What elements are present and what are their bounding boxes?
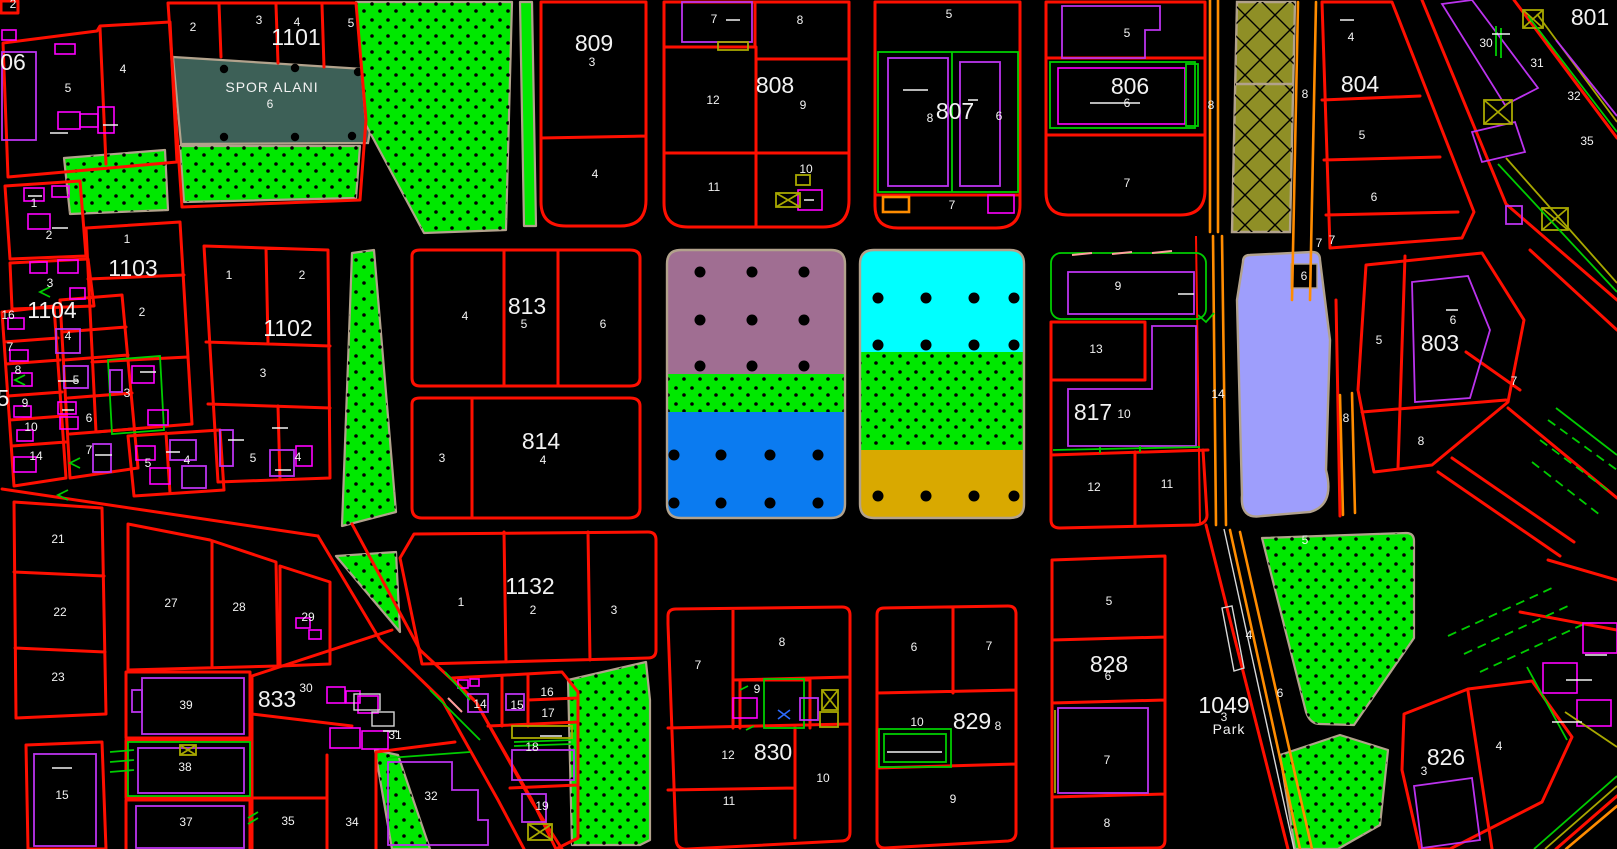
zone-block-mauve-blue[interactable] bbox=[667, 250, 845, 518]
parcel-number-label: 17 bbox=[541, 706, 555, 720]
parcel-number-label: 30 bbox=[1479, 36, 1493, 50]
parcel-number-label: 7 bbox=[1124, 176, 1131, 190]
parcel-number-label: 6 bbox=[996, 109, 1003, 123]
zone-olive-hatch[interactable] bbox=[1232, 2, 1295, 232]
parcel-number-label: 4 bbox=[294, 15, 301, 29]
parcel-number-label: 3 bbox=[611, 603, 618, 617]
parcel-number-label: 12 bbox=[706, 93, 720, 107]
block-number-label: 807 bbox=[936, 98, 974, 124]
block-number-label: 06 bbox=[0, 49, 26, 75]
parcel-number-label: 8 bbox=[995, 719, 1002, 733]
parcel-number-label: 6 bbox=[911, 640, 918, 654]
parcel-number-label: 11 bbox=[1161, 477, 1174, 491]
parcel-number-label: 8 bbox=[1418, 434, 1425, 448]
block-number-label: 1104 bbox=[27, 297, 77, 323]
parcel-number-label: 21 bbox=[51, 532, 65, 546]
parcel-number-label: 9 bbox=[22, 396, 29, 410]
block-number-label: 809 bbox=[575, 30, 613, 56]
parcel-number-label: 4 bbox=[120, 62, 127, 76]
parcel-number-label: 23 bbox=[51, 670, 65, 684]
parcel-number-label: 5 bbox=[65, 81, 72, 95]
block-number-label: 817 bbox=[1074, 399, 1112, 425]
parcel-number-label: 32 bbox=[424, 789, 438, 803]
parcel-number-label: 4 bbox=[1348, 30, 1355, 44]
parcel-number-label: 14 bbox=[29, 449, 43, 463]
parcel-number-label: 8 bbox=[1302, 87, 1309, 101]
parcel-number-label: 14 bbox=[1211, 387, 1225, 401]
parcel-number-label: 6 bbox=[86, 411, 93, 425]
parcel-number-label: 7 bbox=[7, 340, 14, 354]
block-number-label: 829 bbox=[953, 708, 991, 734]
parcel-number-label: 38 bbox=[178, 760, 192, 774]
parcel-number-label: 7 bbox=[1511, 374, 1518, 388]
block-number-label: 803 bbox=[1421, 330, 1459, 356]
parcel-number-label: 6 bbox=[1301, 269, 1308, 283]
parcel-number-label: 8 bbox=[1208, 98, 1215, 112]
parcel-number-label: 19 bbox=[535, 799, 549, 813]
block-number-label: 808 bbox=[756, 72, 794, 98]
parcel-number-label: 10 bbox=[799, 162, 813, 176]
parcel-number-label: 15 bbox=[55, 788, 69, 802]
parcel-number-label: 22 bbox=[53, 605, 67, 619]
parcel-number-label: 15 bbox=[510, 698, 524, 712]
parcel-number-label: 3 bbox=[124, 386, 131, 400]
parcel-number-label: 1 bbox=[458, 595, 465, 609]
parcel-number-label: 5 bbox=[145, 456, 152, 470]
parcel-number-label: 5 bbox=[250, 451, 257, 465]
parcel-number-label: 6 bbox=[1371, 190, 1378, 204]
parcel-number-label: 31 bbox=[1530, 56, 1544, 70]
parcel-number-label: 9 bbox=[950, 792, 957, 806]
cad-map-canvas[interactable]: 0611018098088078068048015110411031102813… bbox=[0, 0, 1617, 849]
block-number-label: 833 bbox=[258, 686, 296, 712]
parcel-number-label: 5 bbox=[1106, 594, 1113, 608]
parcel-number-label: 7 bbox=[1316, 236, 1323, 250]
parcel-number-label: 6 bbox=[1450, 313, 1457, 327]
parcel-number-label: 9 bbox=[800, 98, 807, 112]
parcel-number-label: 8 bbox=[15, 363, 22, 377]
parcel-number-label: 4 bbox=[540, 453, 547, 467]
parcel-number-label: 32 bbox=[1567, 89, 1581, 103]
parcel-number-label: 35 bbox=[1580, 134, 1594, 148]
parcel-number-label: 4 bbox=[462, 309, 469, 323]
parcel-number-label: 1 bbox=[31, 196, 38, 210]
parcel-number-label: 6 bbox=[1277, 686, 1284, 700]
parcel-number-label: 18 bbox=[525, 740, 539, 754]
parcel-number-label: 4 bbox=[1246, 628, 1253, 642]
parcel-number-label: 5 bbox=[521, 317, 528, 331]
parcel-number-label: 6 bbox=[1105, 669, 1112, 683]
parcel-number-label: 7 bbox=[1104, 753, 1111, 767]
parcel-number-label: 10 bbox=[1117, 407, 1131, 421]
zone-name-label: SPOR ALANI bbox=[225, 79, 318, 95]
parcel-number-label: 2 bbox=[46, 228, 53, 242]
parcel-number-label: 5 bbox=[946, 7, 953, 21]
parcel-number-label: 30 bbox=[299, 681, 313, 695]
parcel-number-label: 4 bbox=[65, 329, 72, 343]
parcel-number-label: 5 bbox=[1359, 128, 1366, 142]
parcel-number-label: 4 bbox=[1496, 739, 1503, 753]
block-number-label: 801 bbox=[1571, 4, 1609, 30]
parcel-number-label: 8 bbox=[1343, 411, 1350, 425]
parcel-number-label: 27 bbox=[164, 596, 178, 610]
parcel-number-label: 6 bbox=[267, 97, 274, 111]
block-number-label: 814 bbox=[522, 428, 561, 454]
parcel-number-label: 6 bbox=[1124, 96, 1131, 110]
parcel-number-label: 7 bbox=[695, 658, 702, 672]
block-number-label: 830 bbox=[754, 739, 792, 765]
parcel-number-label: 3 bbox=[589, 55, 596, 69]
zone-park[interactable] bbox=[520, 2, 536, 226]
parcel-number-label: 4 bbox=[592, 167, 599, 181]
block-number-label: 826 bbox=[1427, 744, 1465, 770]
parcel-number-label: 1 bbox=[226, 268, 233, 282]
parcel-number-label: 2 bbox=[530, 603, 537, 617]
parcel-number-label: 5 bbox=[1376, 333, 1383, 347]
parcel-number-label: 8 bbox=[1104, 816, 1111, 830]
block-number-label: 5 bbox=[0, 385, 9, 411]
parcel-number-label: 3 bbox=[256, 13, 263, 27]
block-number-label: 804 bbox=[1341, 71, 1380, 97]
parcel-number-label: 14 bbox=[473, 697, 487, 711]
parcel-number-label: 4 bbox=[295, 450, 302, 464]
parcel-number-label: 39 bbox=[179, 698, 193, 712]
parcel-number-label: 11 bbox=[723, 794, 736, 808]
parcel-number-label: 13 bbox=[1089, 342, 1103, 356]
parcel-number-label: 8 bbox=[779, 635, 786, 649]
parcel-number-label: 3 bbox=[439, 451, 446, 465]
block-number-label: 813 bbox=[508, 293, 546, 319]
parcel-number-label: 12 bbox=[1087, 480, 1101, 494]
parcel-number-label: 1 bbox=[124, 232, 131, 246]
parcel-number-label: 5 bbox=[1124, 26, 1131, 40]
parcel-number-label: 5 bbox=[73, 373, 80, 387]
parcel-number-label: 3 bbox=[1421, 764, 1428, 778]
parcel-number-label: 10 bbox=[816, 771, 830, 785]
parcel-number-label: 9 bbox=[754, 682, 761, 696]
parcel-number-label: 35 bbox=[281, 814, 295, 828]
parcel-number-label: 6 bbox=[600, 317, 607, 331]
parcel-number-label: 16 bbox=[1, 308, 15, 322]
parcel-number-label: 5 bbox=[1302, 533, 1309, 547]
parcel-number-label: 7 bbox=[1329, 233, 1336, 247]
parcel-number-label: 5 bbox=[348, 16, 355, 30]
parcel-number-label: 9 bbox=[1115, 279, 1122, 293]
parcel-number-label: 2 bbox=[10, 0, 17, 11]
zone-name-label: Park bbox=[1213, 721, 1246, 737]
parcel-number-label: 3 bbox=[47, 276, 54, 290]
parcel-number-label: 3 bbox=[260, 366, 267, 380]
parcel-number-label: 16 bbox=[540, 685, 554, 699]
parcel-number-label: 7 bbox=[711, 12, 718, 26]
parcel-number-label: 7 bbox=[986, 639, 993, 653]
parcel-number-label: 7 bbox=[949, 198, 956, 212]
parcel-number-label: 29 bbox=[301, 610, 315, 624]
parcel-number-label: 3 bbox=[1221, 710, 1228, 724]
block-number-label: 1132 bbox=[505, 573, 554, 599]
parcel-number-label: 34 bbox=[345, 815, 359, 829]
parcel-number-label: 2 bbox=[139, 305, 146, 319]
zone-sports-area[interactable] bbox=[173, 57, 380, 144]
parcel-number-label: 10 bbox=[910, 715, 924, 729]
parcel-number-label: 10 bbox=[24, 420, 38, 434]
zone-lavender-parcel[interactable] bbox=[1237, 252, 1330, 517]
parcel-number-label: 8 bbox=[927, 111, 934, 125]
parcel-number-label: 8 bbox=[797, 13, 804, 27]
block-number-label: 1102 bbox=[263, 315, 312, 341]
parcel-number-label: 2 bbox=[190, 20, 197, 34]
block-number-label: 1103 bbox=[108, 255, 157, 281]
parcel-number-label: 4 bbox=[184, 453, 191, 467]
map-viewport[interactable]: 0611018098088078068048015110411031102813… bbox=[0, 0, 1617, 849]
parcel-number-label: 37 bbox=[179, 815, 193, 829]
parcel-number-label: 11 bbox=[708, 180, 721, 194]
zone-block-cyan-gold[interactable] bbox=[860, 250, 1024, 518]
parcel-number-label: 7 bbox=[86, 443, 93, 457]
parcel-number-label: 2 bbox=[299, 268, 306, 282]
parcel-number-label: 28 bbox=[232, 600, 246, 614]
parcel-number-label: 31 bbox=[388, 728, 402, 742]
parcel-number-label: 12 bbox=[721, 748, 735, 762]
